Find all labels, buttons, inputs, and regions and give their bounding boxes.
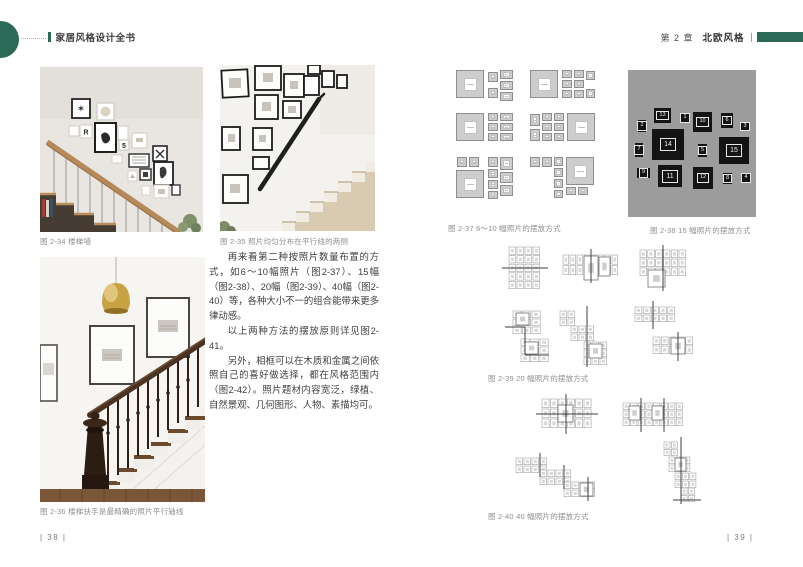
photo-frame <box>530 114 540 126</box>
fig-2-37-diagram <box>448 66 620 216</box>
page-number-left: | 38 | <box>40 533 67 542</box>
caption-fig-2-40: 图 2-40 40 幅照片的摆放方式 <box>488 511 589 522</box>
caption-fig-2-38: 图 2-38 15 幅照片的摆放方式 <box>650 225 751 236</box>
photo-frame <box>500 185 513 196</box>
photo-frame <box>554 123 564 131</box>
photo-frame <box>488 113 498 121</box>
numbered-frame-4: 4 <box>742 173 750 183</box>
photo-frame <box>500 92 513 101</box>
photo-frame <box>456 170 484 198</box>
photo-frame <box>488 191 498 199</box>
photo-frame <box>586 89 595 98</box>
photo-frame <box>562 90 572 98</box>
photo-frame <box>488 180 498 189</box>
photo-frame <box>542 157 552 167</box>
photo-frame <box>554 133 564 141</box>
photo-frame <box>488 123 498 131</box>
letter-r-art: R <box>83 130 88 137</box>
photo-frame <box>562 70 572 78</box>
photo-frame <box>554 179 563 188</box>
svg-text:✶: ✶ <box>77 104 85 115</box>
photo-frame <box>456 70 484 98</box>
numbered-frame-10: 10 <box>693 112 712 132</box>
photo-frame <box>500 70 513 79</box>
photo-frame <box>574 90 584 98</box>
running-head-left: 家居风格设计全书 <box>48 30 136 44</box>
caption-fig-2-36: 图 2-36 楼梯扶手是最精确的照片平行轴线 <box>40 506 184 517</box>
photo-frame <box>500 172 513 183</box>
photo-frame <box>530 129 540 141</box>
number-five-art: 5 <box>122 143 126 150</box>
paragraph: 再来看第二种按照片数量布置的方式，如6～10幅照片（图2-37）、15幅（图2-… <box>209 250 379 324</box>
photo-frame <box>574 80 584 88</box>
running-head-right: 第 2 章 北欧风格 <box>660 30 803 44</box>
numbered-frame-2: 2 <box>638 120 646 132</box>
photo-frame <box>542 113 552 121</box>
chapter-label: 第 2 章 <box>660 31 693 44</box>
photo-frame <box>530 70 558 98</box>
photo-staircase-gallery-wall: ✶ R 5 <box>40 67 203 232</box>
numbered-frame-5: 5 <box>698 144 707 157</box>
photo-frame <box>566 157 594 185</box>
chapter-title: 北欧风格 <box>702 30 744 44</box>
numbered-frame-3: 3 <box>741 122 749 131</box>
photo-frame <box>488 88 498 98</box>
caption-fig-2-35: 图 2-35 照片均匀分布在平行线的两侧 <box>220 236 348 247</box>
photo-frame <box>457 157 467 167</box>
photo-parallel-frames-staircase <box>220 65 375 231</box>
numbered-frame-11: 11 <box>658 165 682 187</box>
page-number-right: | 39 | <box>727 533 754 542</box>
photo-frame <box>554 190 563 198</box>
numbered-frame-9: 9 <box>637 168 650 178</box>
title-bar-icon <box>48 32 51 42</box>
numbered-frame-7: 7 <box>635 143 643 157</box>
photo-frame <box>554 113 564 121</box>
paragraph: 以上两种方法的摆放原则详见图2-41。 <box>209 324 379 354</box>
photo-frame <box>500 81 513 90</box>
caption-fig-2-34: 图 2-34 楼梯墙 <box>40 236 91 247</box>
photo-2-34-illustration: ✶ R 5 <box>40 67 203 232</box>
corner-circle-decoration <box>0 21 19 58</box>
numbered-frame-15: 15 <box>719 137 749 164</box>
photo-frame <box>500 113 513 121</box>
green-bar-decoration <box>757 32 803 42</box>
photo-frame <box>567 113 595 141</box>
photo-frame <box>488 133 498 141</box>
photo-frame <box>578 187 588 195</box>
photo-frame <box>530 157 540 167</box>
photo-frame <box>554 168 563 177</box>
photo-frame <box>456 113 484 141</box>
photo-frame <box>500 133 513 141</box>
photo-frame <box>586 71 595 80</box>
fig-2-39-diagram <box>485 243 770 369</box>
numbered-frame-13: 13 <box>654 108 671 123</box>
numbered-frame-6: 6 <box>721 113 733 128</box>
book-spread: 家居风格设计全书 第 2 章 北欧风格 ✶ R 5 <box>0 0 803 567</box>
fig-2-38-diagram: 213110637145159111284 <box>628 70 756 217</box>
photo-frame <box>566 187 576 195</box>
caption-fig-2-37: 图 2-37 6～10 幅照片的摆放方式 <box>448 223 561 234</box>
paragraph: 另外，相框可以在木质和金属之间依照自己的喜好做选择，都在风格范围内（图2-42）… <box>209 354 379 413</box>
separator-bar-icon <box>751 33 753 42</box>
caption-fig-2-39: 图 2-39 20 幅照片的摆放方式 <box>488 373 589 384</box>
numbered-frame-12: 12 <box>693 167 713 189</box>
photo-frame <box>469 157 479 167</box>
photo-2-35-illustration <box>220 65 375 231</box>
photo-2-36-illustration <box>40 257 205 502</box>
photo-frame <box>500 157 513 170</box>
body-text-column: 再来看第二种按照片数量布置的方式，如6～10幅照片（图2-37）、15幅（图2-… <box>209 250 379 413</box>
photo-frame <box>542 133 552 141</box>
numbered-frame-1: 1 <box>681 113 689 123</box>
fig-2-40-diagram <box>488 392 778 508</box>
photo-banister-staircase <box>40 257 205 502</box>
photo-frame <box>574 70 584 78</box>
book-title: 家居风格设计全书 <box>56 30 136 44</box>
photo-frame <box>562 80 572 88</box>
photo-frame <box>554 157 563 166</box>
numbered-frame-8: 8 <box>723 173 732 184</box>
dotted-lead-line <box>21 38 46 39</box>
photo-frame <box>488 169 498 178</box>
numbered-frame-14: 14 <box>652 129 684 160</box>
photo-frame <box>500 123 513 131</box>
photo-frame <box>542 123 552 131</box>
photo-frame <box>488 72 498 82</box>
photo-frame <box>488 157 498 167</box>
